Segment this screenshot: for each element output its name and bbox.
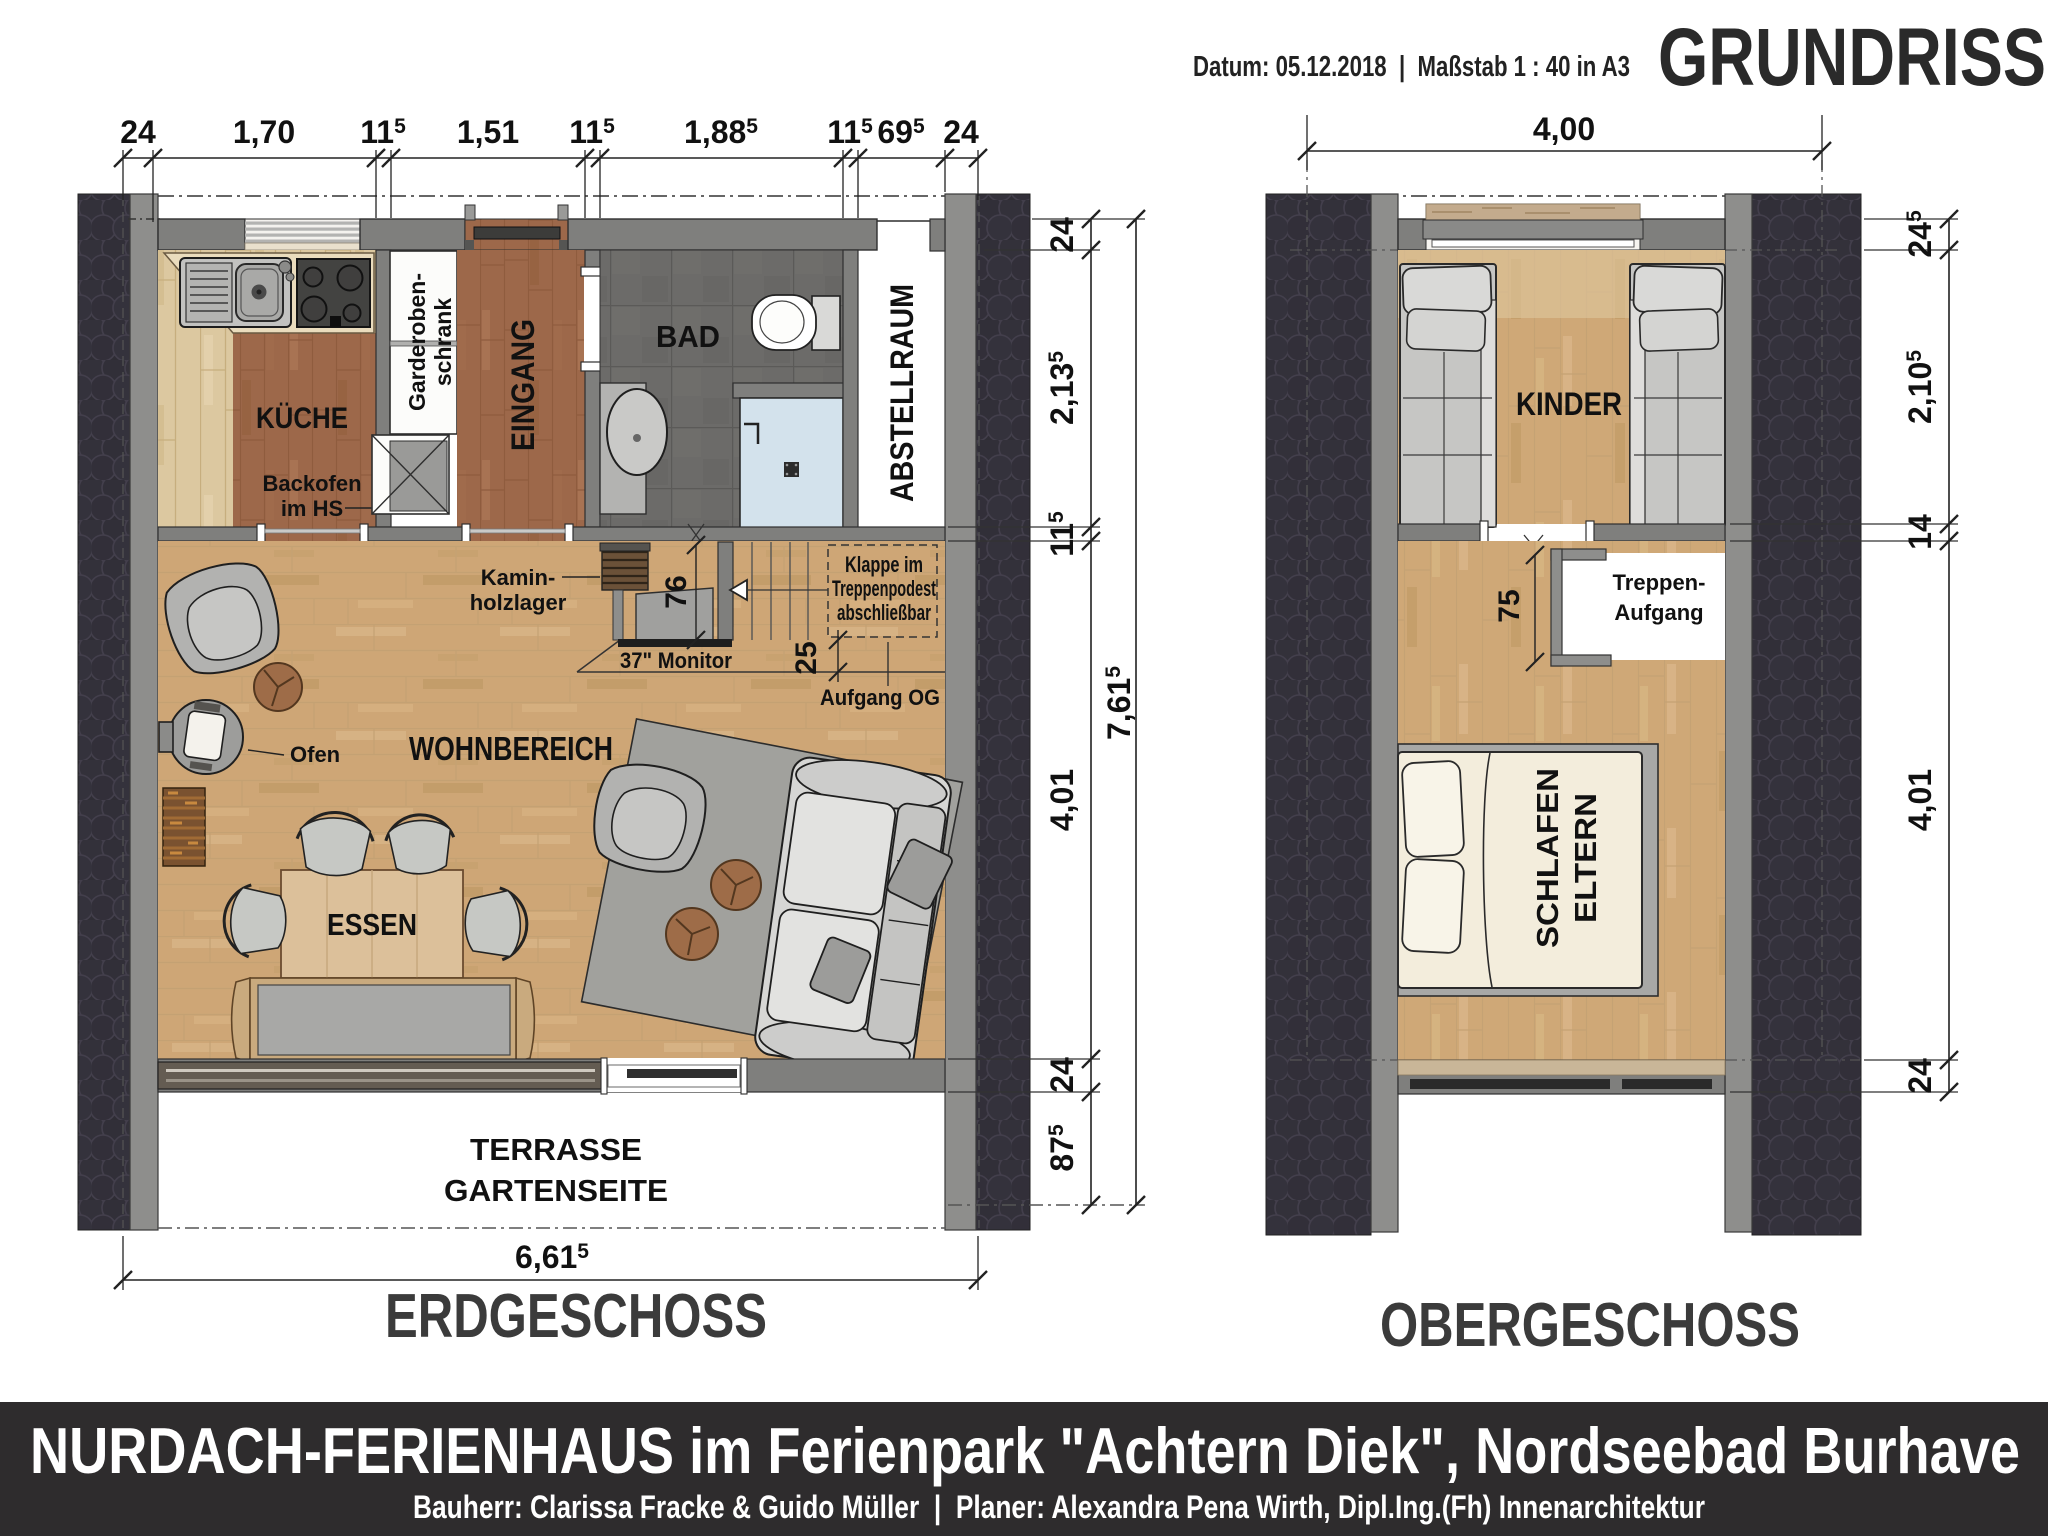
svg-text:SCHLAFEN: SCHLAFEN: [1530, 768, 1565, 948]
svg-text:24: 24: [1902, 1058, 1938, 1094]
svg-text:4,01: 4,01: [1902, 769, 1938, 831]
svg-text:Ofen: Ofen: [290, 742, 340, 767]
svg-text:75: 75: [1493, 589, 1526, 622]
svg-text:24: 24: [1044, 217, 1080, 253]
svg-text:24: 24: [120, 114, 156, 150]
svg-text:Bauherr: Clarissa Fracke & Gui: Bauherr: Clarissa Fracke & Guido Müller …: [413, 1489, 1705, 1525]
svg-text:NURDACH-FERIENHAUS im Ferienpa: NURDACH-FERIENHAUS im Ferienpark "Achter…: [30, 1414, 2020, 1487]
svg-text:WOHNBEREICH: WOHNBEREICH: [409, 730, 613, 767]
svg-text:holzlager: holzlager: [470, 590, 567, 615]
svg-text:KINDER: KINDER: [1516, 386, 1622, 422]
svg-text:Aufgang: Aufgang: [1614, 600, 1703, 625]
svg-text:abschließbar: abschließbar: [837, 600, 931, 625]
svg-text:ELTERN: ELTERN: [1568, 793, 1603, 923]
svg-text:ABSTELLRAUM: ABSTELLRAUM: [884, 284, 920, 502]
svg-text:schrank: schrank: [430, 298, 456, 386]
svg-text:GARTENSEITE: GARTENSEITE: [444, 1173, 668, 1208]
svg-text:Kamin-: Kamin-: [481, 565, 556, 590]
svg-text:ERDGESCHOSS: ERDGESCHOSS: [385, 1282, 767, 1351]
svg-text:GRUNDRISS: GRUNDRISS: [1658, 12, 2046, 103]
svg-text:TERRASSE: TERRASSE: [470, 1132, 642, 1167]
svg-text:Klappe im: Klappe im: [845, 552, 923, 577]
svg-text:Aufgang OG: Aufgang OG: [820, 685, 940, 710]
svg-text:im HS: im HS: [281, 496, 343, 521]
svg-text:Treppen-: Treppen-: [1613, 570, 1706, 595]
svg-text:24: 24: [943, 114, 979, 150]
svg-text:BAD: BAD: [656, 319, 720, 354]
svg-text:Datum: 05.12.2018 | Maßstab: Datum: 05.12.2018 | Maßstab 1 : 40 in A3: [1193, 51, 1630, 83]
svg-text:25: 25: [790, 641, 823, 674]
svg-text:KÜCHE: KÜCHE: [256, 402, 348, 435]
svg-text:1,51: 1,51: [457, 114, 519, 150]
svg-text:37" Monitor: 37" Monitor: [620, 648, 732, 673]
svg-text:4,00: 4,00: [1533, 111, 1595, 147]
svg-text:Treppenpodest: Treppenpodest: [832, 576, 936, 601]
svg-text:24: 24: [1044, 1057, 1080, 1093]
svg-text:Backofen: Backofen: [262, 471, 361, 496]
svg-text:4,01: 4,01: [1044, 769, 1080, 831]
svg-text:EINGANG: EINGANG: [505, 319, 541, 451]
svg-text:1,70: 1,70: [233, 114, 295, 150]
svg-text:14: 14: [1902, 514, 1938, 550]
svg-text:OBERGESCHOSS: OBERGESCHOSS: [1380, 1291, 1800, 1360]
svg-text:Garderoben-: Garderoben-: [404, 273, 430, 411]
svg-text:76: 76: [660, 575, 693, 608]
svg-text:ESSEN: ESSEN: [327, 907, 417, 942]
